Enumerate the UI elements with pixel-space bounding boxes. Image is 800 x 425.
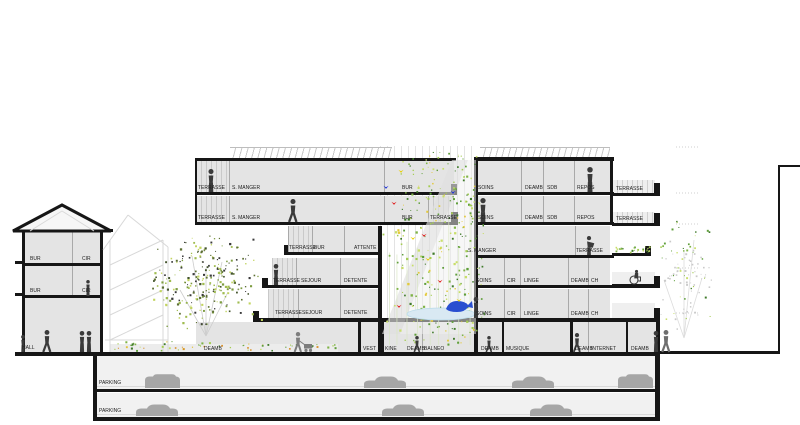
- room-label: DETENTE: [344, 279, 367, 284]
- room-label: TERRASSE: [616, 217, 643, 222]
- room-label: DEAMB: [481, 347, 499, 352]
- room-label: CIR: [507, 312, 516, 317]
- room-label: SOINS: [478, 186, 494, 191]
- room-label: BUR: [30, 289, 41, 294]
- room-label: SOINS: [476, 312, 492, 317]
- room-label: DEAMB: [525, 186, 543, 191]
- room-label: DEAMB: [571, 312, 589, 317]
- room-label: BUR: [30, 257, 41, 262]
- room-label: KINE: [385, 347, 397, 352]
- room-label: BUR: [402, 186, 413, 191]
- room-label: TERRASSE: [198, 216, 225, 221]
- room-label: PARKING: [99, 409, 121, 414]
- room-label: INTERNET: [591, 347, 616, 352]
- room-label: LINGE: [524, 279, 539, 284]
- room-label: S. MANGER: [468, 249, 496, 254]
- room-label: S. MANGER: [232, 216, 260, 221]
- room-label: BUR: [314, 246, 325, 251]
- room-label: BUR: [402, 216, 413, 221]
- room-label: CIR: [507, 279, 516, 284]
- architectural-section-canvas: BURCIRBURCIRHALLTERRASSES. MANGERBURTERR…: [0, 0, 800, 425]
- room-label: TERRASSE: [576, 249, 603, 254]
- room-label: DEAMB: [571, 279, 589, 284]
- room-label: ATTENTE: [354, 246, 376, 251]
- room-label: CIR: [82, 289, 91, 294]
- room-label: TERRASSE: [289, 246, 316, 251]
- room-label: VEST: [363, 347, 376, 352]
- room-label: BALNEO: [424, 347, 444, 352]
- room-label: SDB: [547, 216, 557, 221]
- room-label: SEJOUR: [301, 279, 321, 284]
- room-label: SOINS: [476, 279, 492, 284]
- room-label: HALL: [22, 346, 35, 351]
- room-label: CH: [591, 312, 598, 317]
- room-label: PARKING: [99, 381, 121, 386]
- room-labels-layer: BURCIRBURCIRHALLTERRASSES. MANGERBURTERR…: [0, 0, 800, 425]
- room-label: SDB: [547, 186, 557, 191]
- room-label: REPOS: [577, 216, 595, 221]
- room-label: DETENTE: [344, 311, 367, 316]
- room-label: DEAMB: [525, 216, 543, 221]
- room-label: TERRASSE: [273, 279, 300, 284]
- room-label: TERRASSE: [430, 216, 457, 221]
- room-label: TERRASSE: [198, 186, 225, 191]
- room-label: S. MANGER: [232, 186, 260, 191]
- room-label: SEJOUR: [302, 311, 322, 316]
- room-label: MUSIQUE: [506, 347, 529, 352]
- room-label: DEAMB: [407, 347, 425, 352]
- room-label: SOINS: [478, 216, 494, 221]
- room-label: DEAMB: [631, 347, 649, 352]
- room-label: REPOS: [577, 186, 595, 191]
- room-label: CH: [591, 279, 598, 284]
- room-label: LINGE: [524, 312, 539, 317]
- room-label: TERRASSE: [616, 187, 643, 192]
- room-label: TERRASSE: [275, 311, 302, 316]
- room-label: DEAMB: [204, 347, 222, 352]
- room-label: CIR: [82, 257, 91, 262]
